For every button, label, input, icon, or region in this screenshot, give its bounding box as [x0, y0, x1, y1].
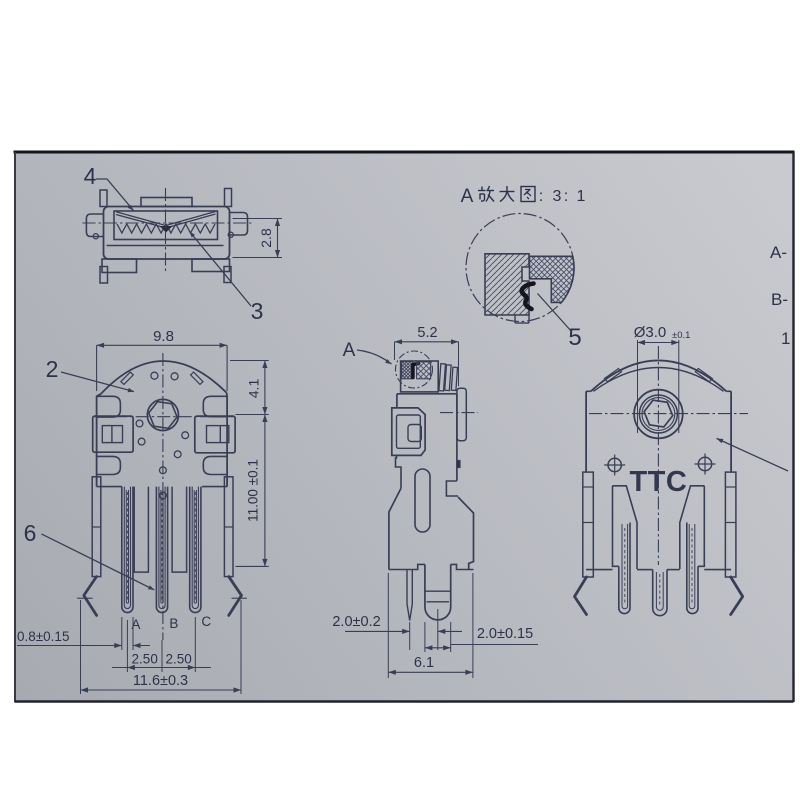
- svg-text:2.0±0.15: 2.0±0.15: [477, 626, 533, 642]
- svg-text:6.1: 6.1: [414, 655, 434, 671]
- svg-text:A: A: [461, 186, 474, 207]
- svg-text:4: 4: [84, 163, 97, 189]
- svg-text:0.8±0.15: 0.8±0.15: [17, 629, 69, 644]
- svg-text:A: A: [343, 340, 356, 361]
- svg-text:6: 6: [24, 520, 37, 546]
- svg-text:2.8: 2.8: [258, 228, 274, 248]
- svg-text:3: 3: [251, 298, 264, 324]
- svg-text:3: 3: [553, 188, 562, 205]
- svg-text:11.00 ±0.1: 11.00 ±0.1: [246, 459, 261, 522]
- svg-text:2.50: 2.50: [165, 652, 191, 667]
- svg-text:A-: A-: [770, 243, 787, 262]
- svg-text:2: 2: [46, 356, 59, 382]
- svg-text:2.0±0.2: 2.0±0.2: [332, 614, 380, 630]
- svg-text:C: C: [201, 614, 211, 629]
- svg-text:5: 5: [568, 324, 581, 351]
- svg-text::: :: [539, 188, 543, 205]
- svg-text:1: 1: [577, 188, 586, 205]
- svg-text:4.1: 4.1: [246, 379, 262, 399]
- svg-text:5.2: 5.2: [417, 325, 437, 341]
- svg-text:11.6±0.3: 11.6±0.3: [133, 673, 188, 689]
- svg-text:TTC: TTC: [629, 466, 687, 498]
- svg-text:2.50: 2.50: [132, 652, 158, 667]
- svg-text:B-: B-: [771, 290, 788, 309]
- svg-text::: :: [564, 188, 568, 205]
- svg-text:1: 1: [781, 329, 790, 348]
- svg-text:Ø3.0: Ø3.0: [634, 324, 667, 341]
- svg-text:±0.1: ±0.1: [672, 330, 690, 341]
- svg-text:B: B: [169, 616, 178, 631]
- svg-text:9.8: 9.8: [153, 328, 174, 345]
